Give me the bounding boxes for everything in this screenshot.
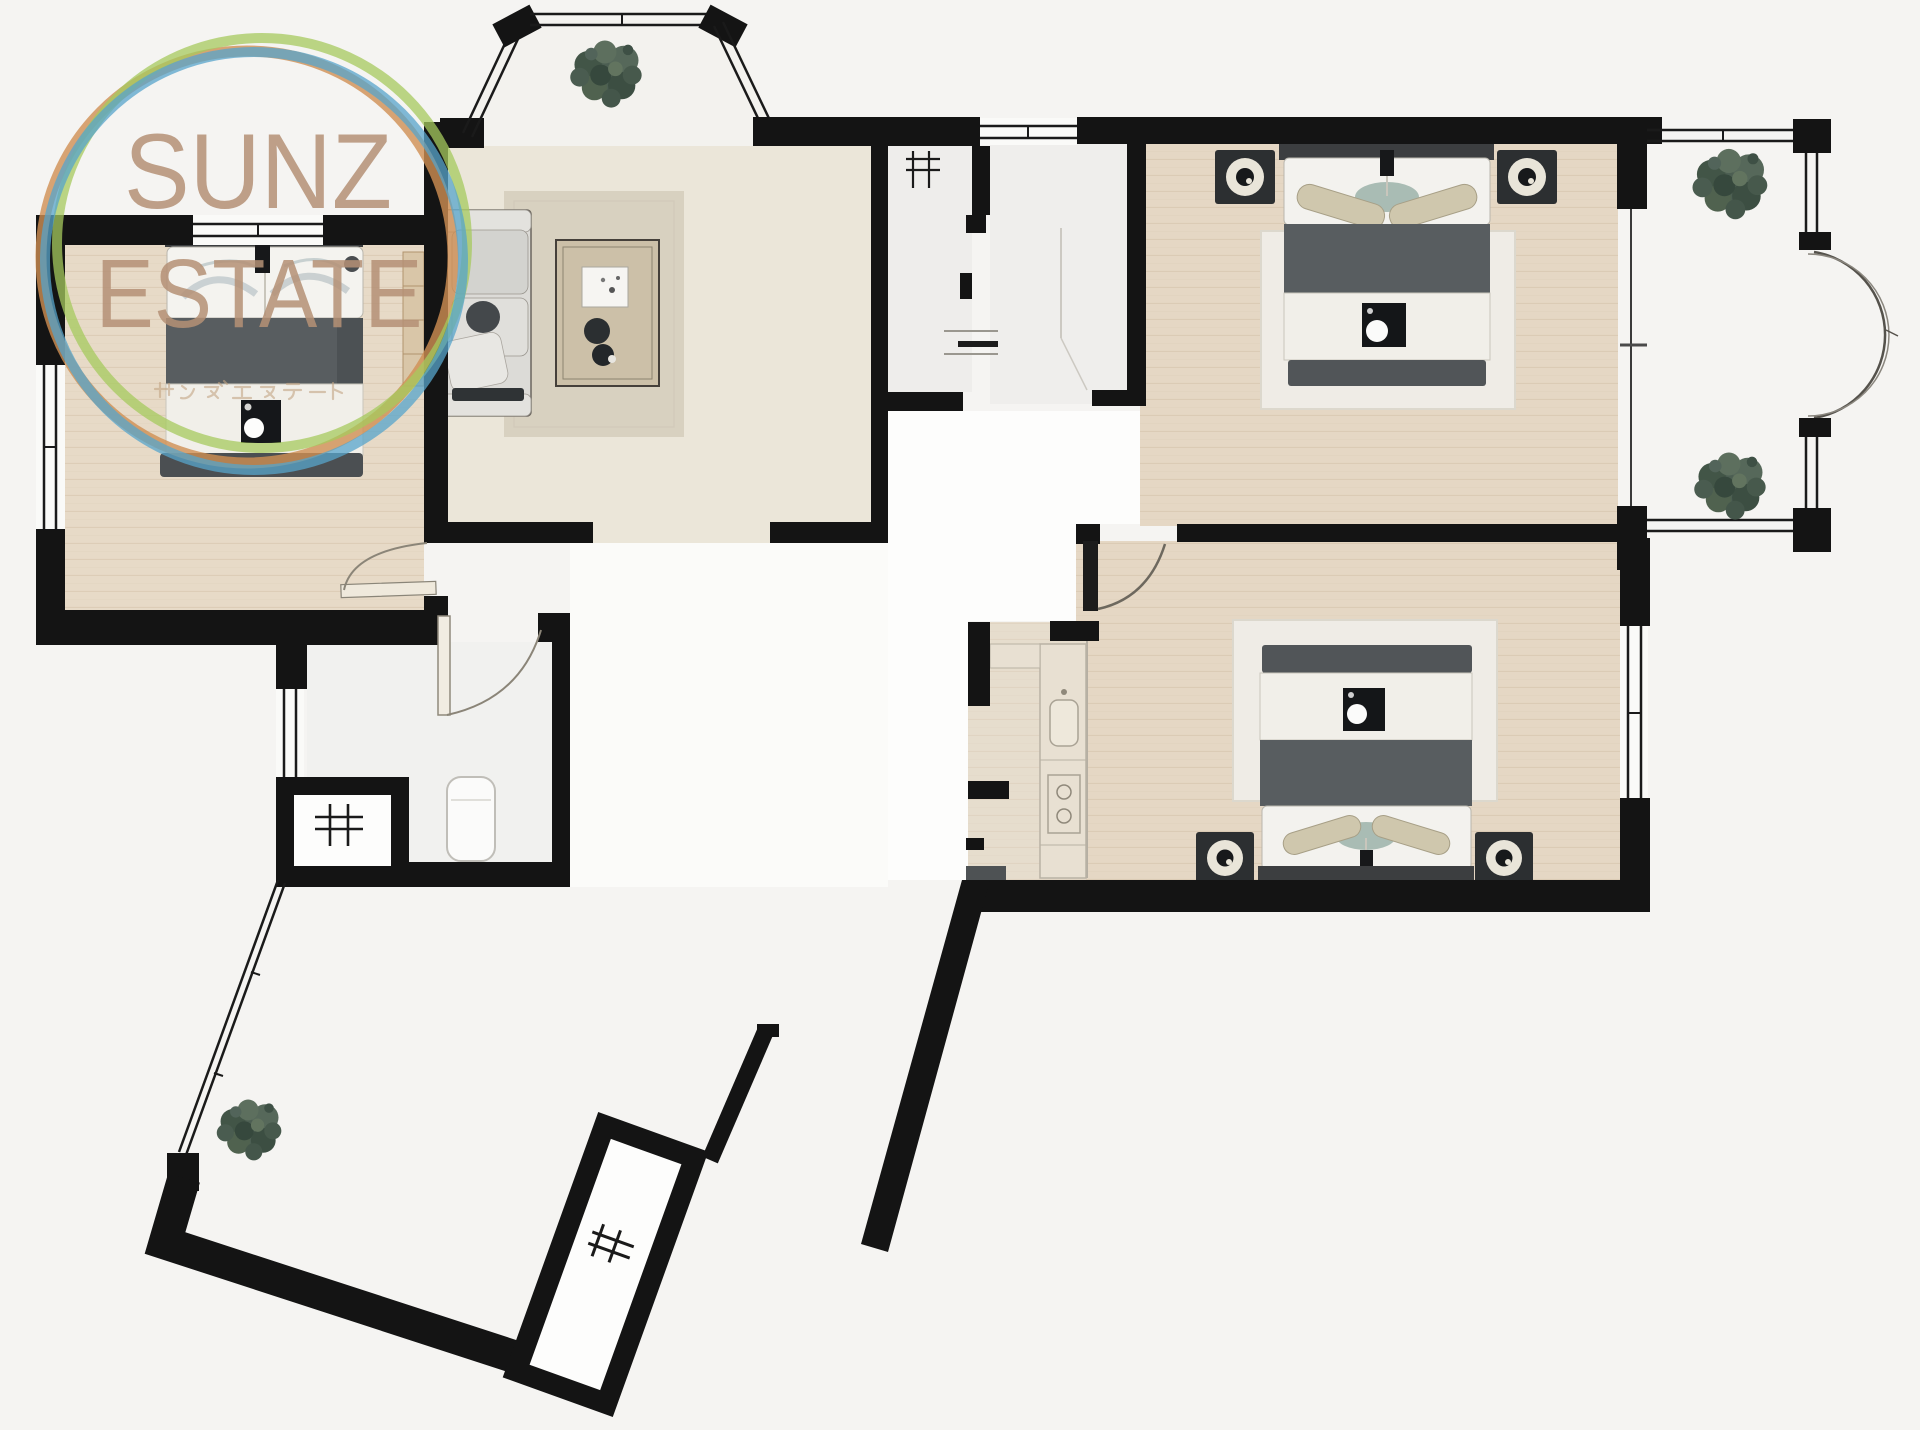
svg-text:SUNZ: SUNZ (124, 111, 392, 231)
svg-text:ESTATE: ESTATE (96, 239, 423, 348)
